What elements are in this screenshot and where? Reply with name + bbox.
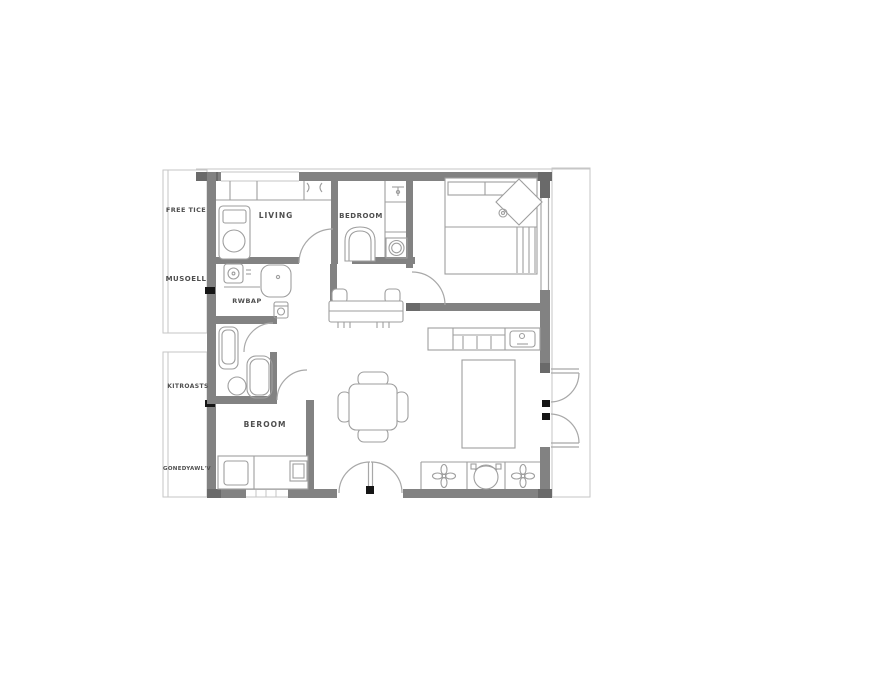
sliding-door-icon xyxy=(307,183,309,192)
vanity-icon xyxy=(247,356,272,398)
dining-set-icon xyxy=(338,372,408,442)
table-icon xyxy=(349,384,397,430)
room-label-kitchen-laundry: RWBAP xyxy=(224,297,270,305)
bedroom-top-furniture xyxy=(445,178,542,274)
door-arc-bedroom-top xyxy=(412,272,445,305)
side-label-1: FREE TICE xyxy=(164,206,208,214)
wall-living-bath xyxy=(331,181,338,264)
bottom-counter xyxy=(421,462,540,489)
entry-double-door xyxy=(339,462,402,494)
sink-icon xyxy=(386,238,407,258)
washer-icon xyxy=(224,264,251,283)
closet-shelves xyxy=(216,181,331,200)
wall-bottom-right xyxy=(403,489,552,498)
bathroom-top-fixtures xyxy=(345,181,407,261)
door-arc-bedroom-bottom xyxy=(277,370,307,400)
wall-tick xyxy=(205,287,215,294)
window-bottom xyxy=(246,488,288,499)
pot-icon xyxy=(471,464,501,489)
window-top xyxy=(221,171,299,183)
left-margin-area-bottom xyxy=(163,352,207,497)
living-room-furniture xyxy=(216,181,331,259)
kitchen-counter xyxy=(428,328,540,350)
bathroom-bottom-fixtures xyxy=(219,327,272,398)
sofa-icon xyxy=(329,289,403,328)
wall-kitchen-bottom xyxy=(207,316,277,324)
sliding-door-icon xyxy=(320,183,322,192)
room-label-bedroom-bottom: BEROOM xyxy=(233,420,297,429)
floor-plan-drawing xyxy=(0,0,896,688)
laundry-kitchen-fixtures xyxy=(224,264,291,318)
dishwasher-icon xyxy=(274,302,288,318)
wall-right-mid xyxy=(540,290,550,373)
side-label-2: MUSOELL xyxy=(163,275,209,283)
basin-icon xyxy=(261,265,291,297)
shower-head-icon xyxy=(392,187,404,196)
burner-flower-icon xyxy=(433,465,456,488)
side-label-4: GONEDYAWL'V xyxy=(161,466,213,472)
wall-right-top xyxy=(540,172,550,198)
door-arc-living xyxy=(299,229,333,263)
wall-bedroom-bottom xyxy=(406,303,545,311)
left-margin-area-top xyxy=(163,170,207,333)
room-label-living: LIVING xyxy=(244,211,308,220)
door-arc-bathroom xyxy=(244,323,273,352)
floor-plan-canvas: LIVING BEDROOM RWBAP BEROOM FREE TICE MU… xyxy=(0,0,896,688)
rug-icon xyxy=(462,360,515,448)
right-balcony-area xyxy=(552,168,590,497)
bedroom-bottom-furniture xyxy=(218,456,308,489)
burner-flower-icon xyxy=(512,465,535,488)
bathtub-icon xyxy=(219,327,238,369)
balcony-french-doors xyxy=(542,369,579,447)
bed-icon xyxy=(445,178,542,274)
toilet-icon xyxy=(345,227,375,261)
wall-left xyxy=(207,172,216,497)
room-label-bath-top: BEDROOM xyxy=(329,212,393,220)
bed2-icon xyxy=(218,456,308,489)
window-right xyxy=(541,198,549,290)
side-label-3: KITROASTS xyxy=(163,383,213,390)
toilet-round-icon xyxy=(228,377,246,395)
